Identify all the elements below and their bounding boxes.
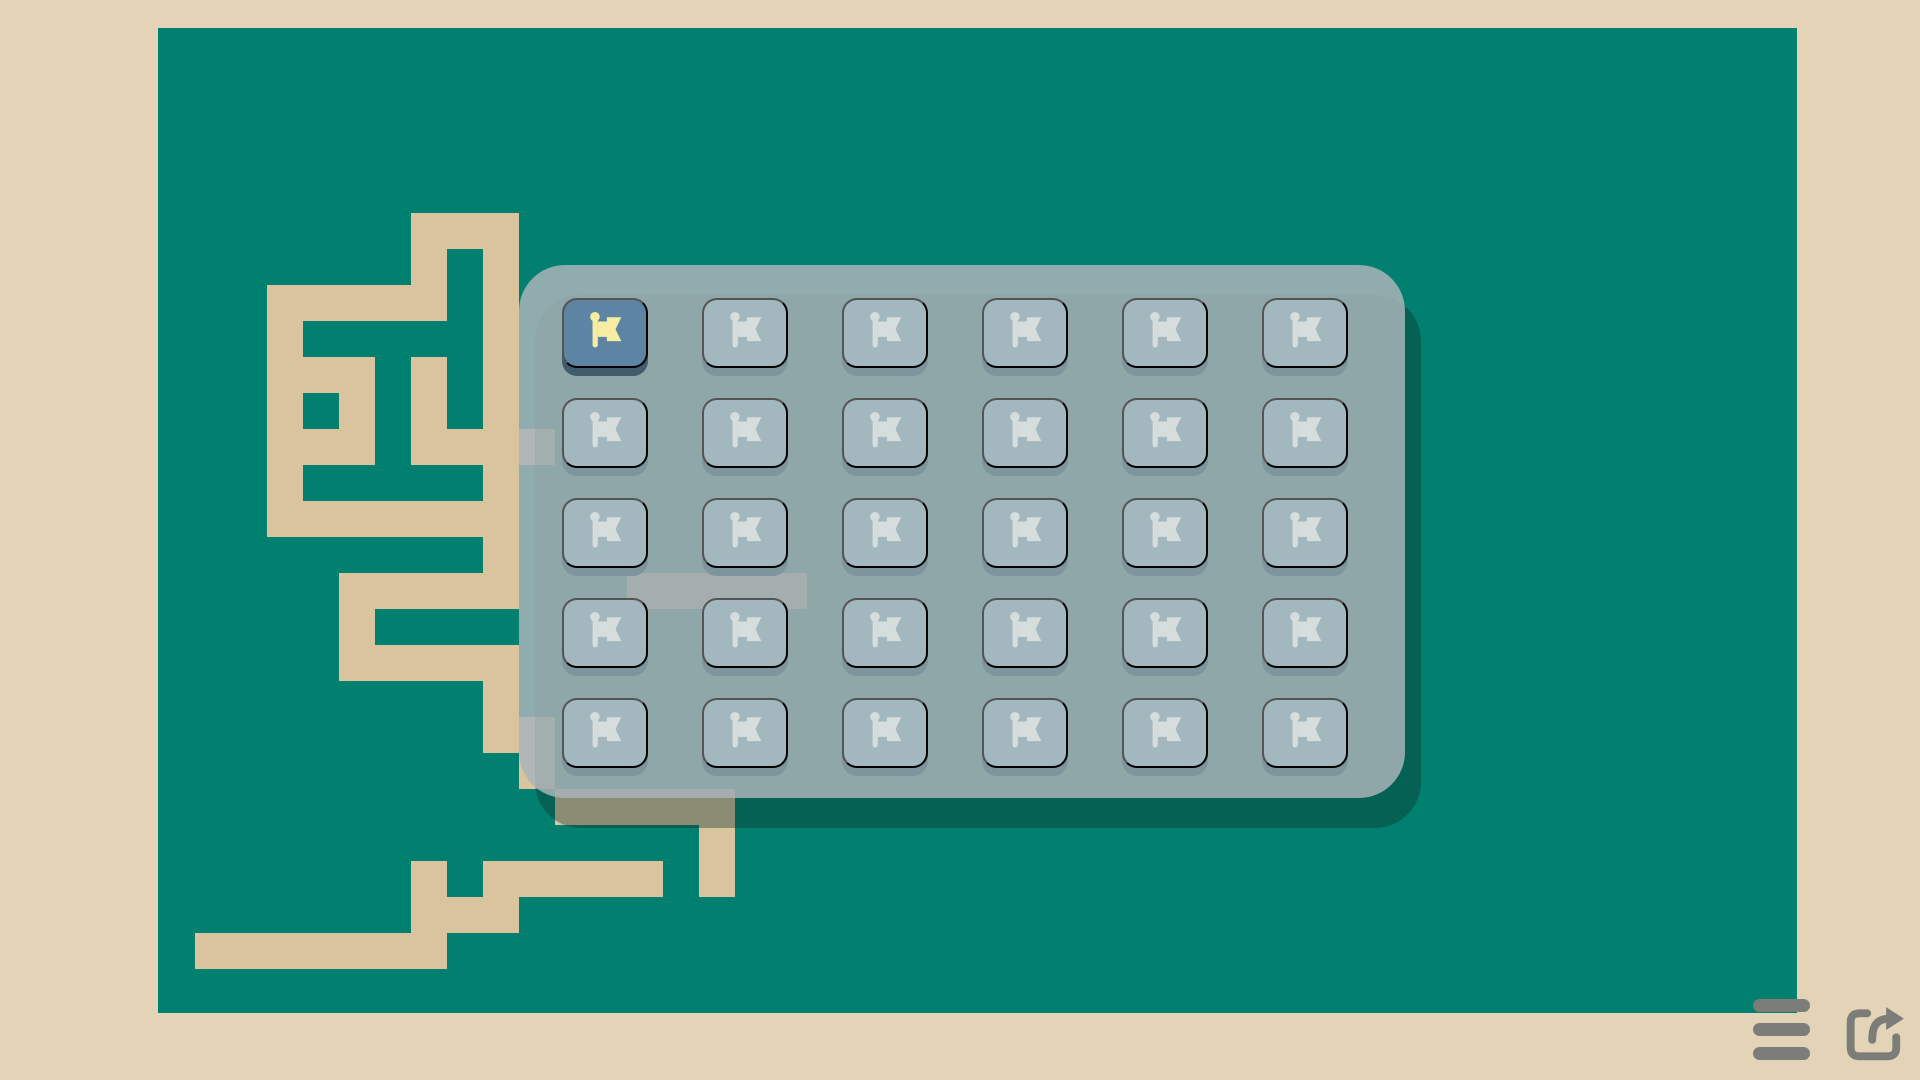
path-segment <box>483 357 519 393</box>
flag-level-button-8[interactable] <box>702 398 788 468</box>
flag-level-button-23[interactable] <box>1122 598 1208 668</box>
flag-icon <box>722 309 768 355</box>
flag-level-button-5[interactable] <box>1122 298 1208 368</box>
path-segment <box>339 393 375 429</box>
flag-icon <box>1282 309 1328 355</box>
flag-level-button-28[interactable] <box>982 698 1068 768</box>
flag-icon <box>582 509 628 555</box>
path-segment <box>483 321 519 357</box>
path-segment <box>411 249 447 285</box>
flag-icon <box>1282 709 1328 755</box>
flag-icon <box>582 409 628 455</box>
flag-icon <box>1142 409 1188 455</box>
path-segment <box>267 429 375 465</box>
flag-level-button-24[interactable] <box>1262 598 1348 668</box>
flag-icon <box>1002 709 1048 755</box>
path-segment <box>411 357 447 393</box>
flag-level-button-9[interactable] <box>842 398 928 468</box>
path-segment <box>267 285 447 321</box>
flag-icon <box>1142 709 1188 755</box>
path-segment <box>339 645 519 681</box>
flag-icon <box>1142 609 1188 655</box>
flag-level-button-3[interactable] <box>842 298 928 368</box>
flag-level-button-12[interactable] <box>1262 398 1348 468</box>
flag-icon <box>862 709 908 755</box>
flag-level-button-15[interactable] <box>842 498 928 568</box>
flag-icon <box>722 509 768 555</box>
path-segment <box>411 861 447 897</box>
path-segment <box>411 897 519 933</box>
flag-level-button-17[interactable] <box>1122 498 1208 568</box>
path-segment <box>267 321 303 357</box>
path-segment <box>483 537 519 573</box>
path-segment <box>267 465 303 501</box>
flag-icon <box>862 609 908 655</box>
flag-icon <box>862 509 908 555</box>
flag-icon <box>722 609 768 655</box>
flag-level-button-16[interactable] <box>982 498 1068 568</box>
flag-level-button-20[interactable] <box>702 598 788 668</box>
path-segment <box>411 393 447 429</box>
flag-level-button-4[interactable] <box>982 298 1068 368</box>
flag-level-button-14[interactable] <box>702 498 788 568</box>
flag-icon <box>1282 609 1328 655</box>
flag-level-button-27[interactable] <box>842 698 928 768</box>
flag-level-button-7[interactable] <box>562 398 648 468</box>
flag-level-button-30[interactable] <box>1262 698 1348 768</box>
flag-level-button-25[interactable] <box>562 698 648 768</box>
flag-level-button-21[interactable] <box>842 598 928 668</box>
path-segment <box>699 825 735 861</box>
flag-level-button-2[interactable] <box>702 298 788 368</box>
menu-icon <box>1753 999 1810 1060</box>
game-stage <box>0 0 1920 1080</box>
flag-level-button-6[interactable] <box>1262 298 1348 368</box>
flag-icon <box>862 309 908 355</box>
path-segment <box>339 609 375 645</box>
flag-level-button-11[interactable] <box>1122 398 1208 468</box>
path-segment <box>699 861 735 897</box>
flag-icon <box>1002 309 1048 355</box>
flag-icon <box>722 709 768 755</box>
flag-level-button-19[interactable] <box>562 598 648 668</box>
flag-icon <box>1142 509 1188 555</box>
flag-level-button-13[interactable] <box>562 498 648 568</box>
flag-icon <box>1002 609 1048 655</box>
flag-level-button-26[interactable] <box>702 698 788 768</box>
path-segment <box>483 861 663 897</box>
path-segment <box>267 393 303 429</box>
flag-level-button-29[interactable] <box>1122 698 1208 768</box>
share-button[interactable] <box>1838 993 1914 1069</box>
path-segment <box>267 501 519 537</box>
flag-icon <box>1142 309 1188 355</box>
path-segment <box>411 213 519 249</box>
flag-icon <box>582 309 628 355</box>
path-segment <box>339 573 519 609</box>
path-segment <box>483 249 519 285</box>
flag-level-button-1[interactable] <box>562 298 648 368</box>
flag-icon <box>1282 409 1328 455</box>
menu-button[interactable] <box>1753 999 1810 1060</box>
flag-icon <box>1282 509 1328 555</box>
flag-icon <box>582 709 628 755</box>
flag-icon <box>862 409 908 455</box>
share-icon <box>1838 993 1914 1069</box>
flag-icon <box>1002 509 1048 555</box>
path-segment <box>483 465 519 501</box>
flag-level-button-10[interactable] <box>982 398 1068 468</box>
path-segment <box>483 393 519 429</box>
path-segment <box>483 681 519 717</box>
flag-level-button-18[interactable] <box>1262 498 1348 568</box>
path-segment <box>267 357 375 393</box>
path-segment <box>195 933 447 969</box>
flag-icon <box>1002 409 1048 455</box>
path-segment <box>483 285 519 321</box>
flag-level-button-22[interactable] <box>982 598 1068 668</box>
flag-icon <box>722 409 768 455</box>
flag-icon <box>582 609 628 655</box>
